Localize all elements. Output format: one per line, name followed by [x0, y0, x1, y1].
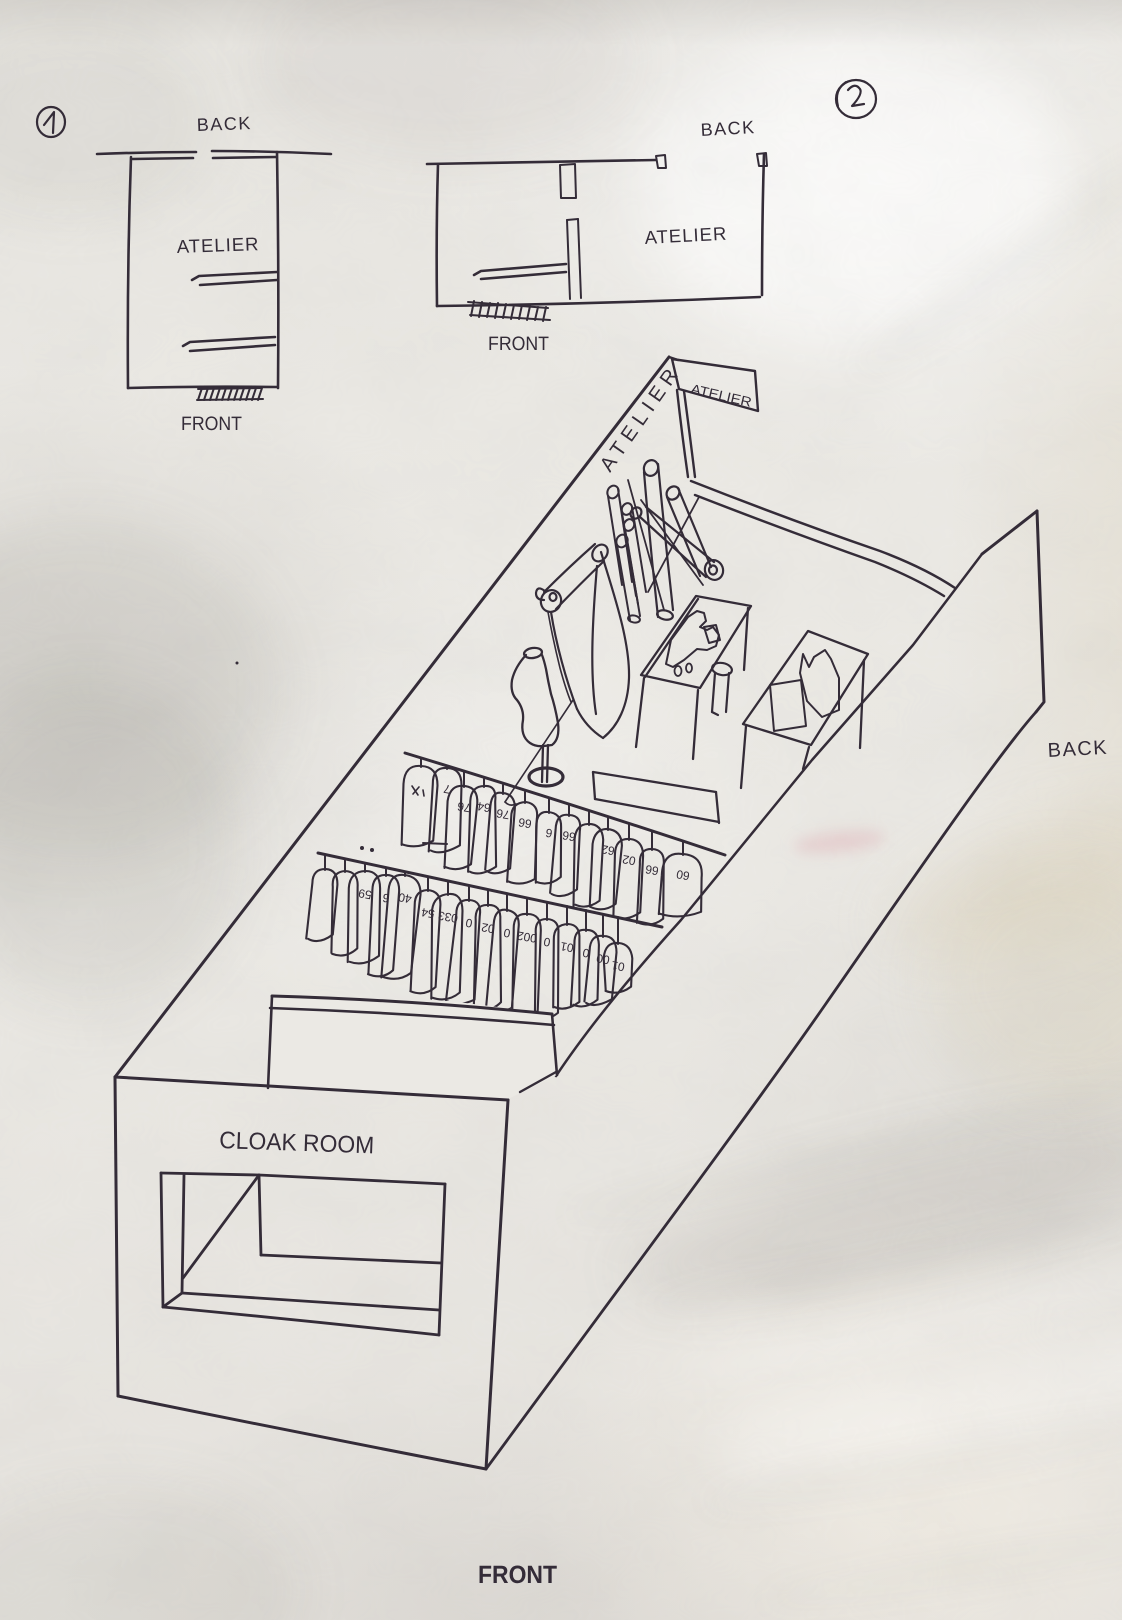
svg-text:FRONT: FRONT: [181, 413, 242, 435]
svg-text:66: 66: [644, 862, 660, 878]
svg-text:62: 62: [600, 842, 616, 858]
svg-text:76: 76: [495, 806, 511, 822]
svg-text:66: 66: [517, 815, 533, 831]
svg-text:0: 0: [464, 915, 473, 930]
svg-text:CLOAK ROOM: CLOAK ROOM: [219, 1127, 375, 1159]
svg-text:60: 60: [675, 867, 691, 883]
svg-text:ATELIER: ATELIER: [689, 381, 753, 410]
svg-text:ATELIER: ATELIER: [595, 363, 684, 476]
svg-text:BACK: BACK: [700, 117, 756, 140]
svg-text:59: 59: [357, 886, 373, 902]
svg-text:40: 40: [397, 890, 413, 906]
svg-text:BACK: BACK: [196, 113, 252, 135]
svg-text:BACK: BACK: [1047, 737, 1109, 762]
svg-text:01: 01: [559, 939, 575, 955]
svg-text:6: 6: [544, 825, 553, 840]
svg-text:ATELIER: ATELIER: [176, 233, 259, 257]
svg-text:FRONT: FRONT: [488, 333, 549, 355]
svg-text:01: 01: [610, 958, 626, 974]
svg-text:0: 0: [542, 934, 551, 949]
svg-text:0: 0: [502, 925, 511, 940]
svg-text:FRONT: FRONT: [478, 1561, 557, 1589]
svg-text:ATELIER: ATELIER: [644, 223, 728, 248]
svg-text:02: 02: [621, 852, 637, 868]
